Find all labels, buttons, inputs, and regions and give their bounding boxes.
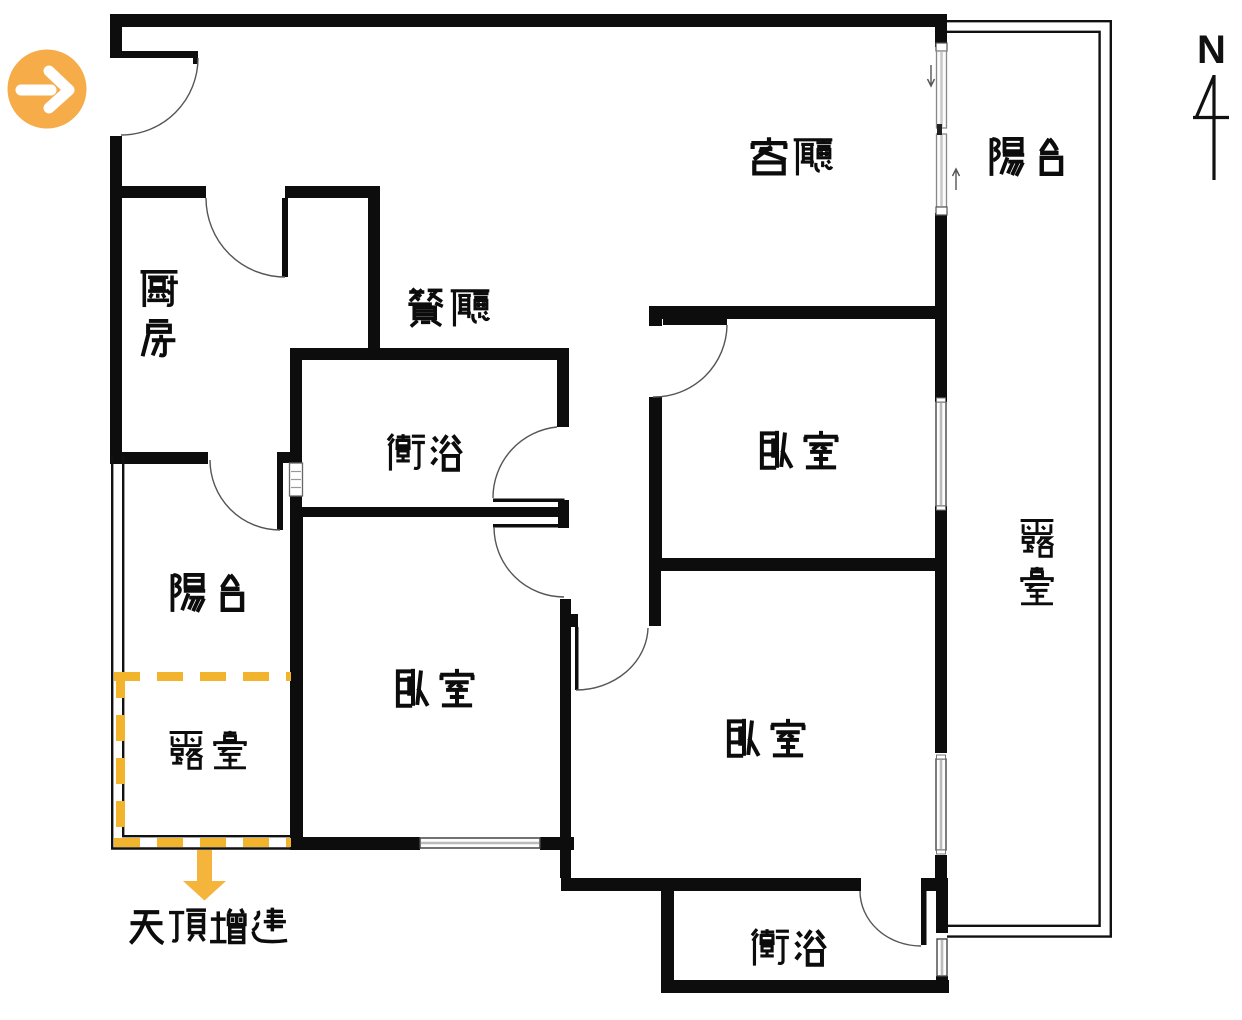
svg-text:N: N <box>1197 28 1226 72</box>
